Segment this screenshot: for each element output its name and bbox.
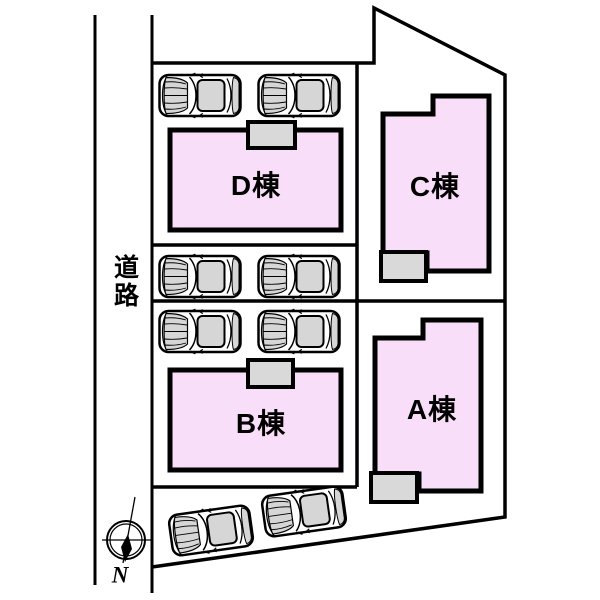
building-d-label: D棟: [231, 172, 281, 200]
building-b-label: B棟: [236, 410, 286, 438]
porch-a: [371, 473, 417, 502]
car-icon: [259, 255, 340, 299]
building-a-label: A棟: [407, 396, 457, 424]
site-plan-diagram: D棟 C棟 B棟 A棟 道路 N: [0, 0, 600, 600]
site-plan-canvas: [0, 0, 600, 600]
compass-icon: [102, 497, 151, 563]
porch-c: [381, 252, 426, 281]
car-icon: [261, 484, 347, 539]
car-icon: [160, 74, 241, 118]
north-label: N: [112, 564, 129, 587]
road-label: 道路: [112, 254, 137, 310]
car-icon: [259, 310, 340, 354]
car-icon: [160, 255, 241, 299]
porch-d: [248, 122, 295, 148]
building-c-label: C棟: [410, 173, 460, 201]
car-icon: [168, 503, 254, 558]
porch-b: [248, 360, 293, 387]
car-icon: [160, 310, 241, 354]
car-icon: [259, 74, 340, 118]
